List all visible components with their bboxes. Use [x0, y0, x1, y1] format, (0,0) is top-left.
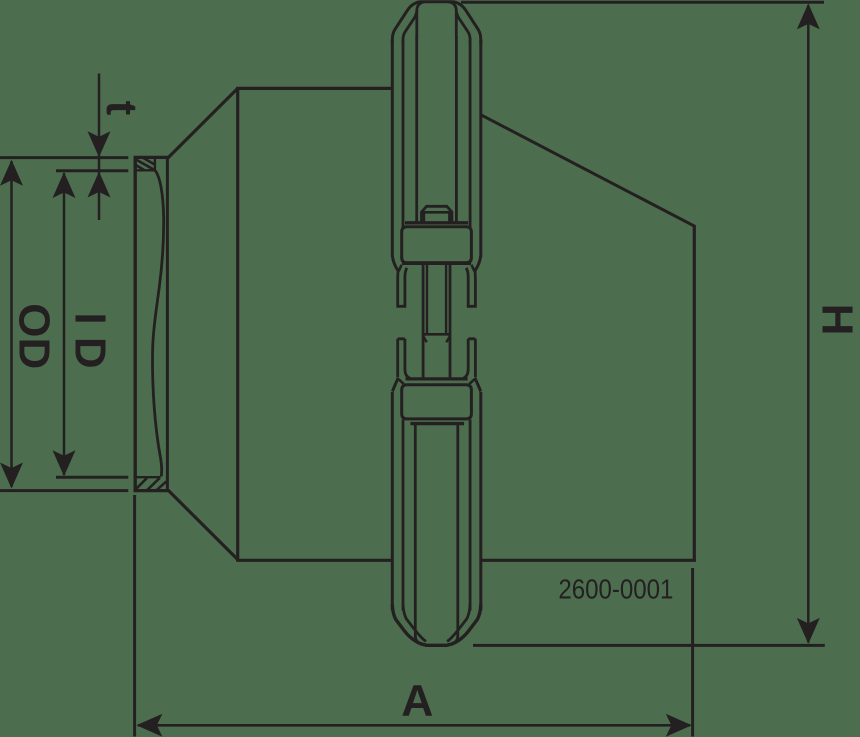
- svg-text:A: A: [401, 677, 433, 726]
- svg-text:I D: I D: [65, 312, 114, 368]
- svg-text:2600-0001: 2600-0001: [558, 575, 673, 605]
- svg-text:H: H: [813, 304, 860, 336]
- svg-text:t: t: [97, 101, 146, 116]
- svg-text:OD: OD: [10, 303, 59, 369]
